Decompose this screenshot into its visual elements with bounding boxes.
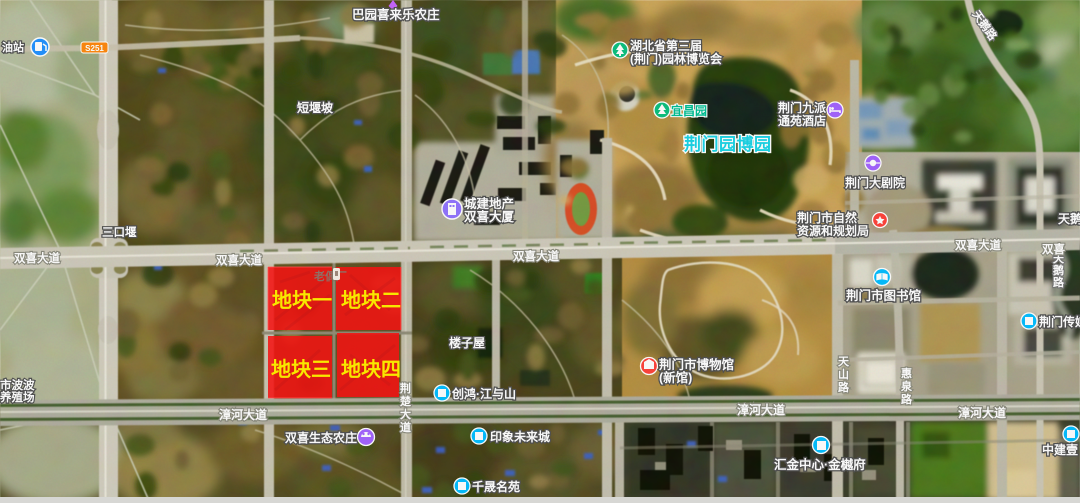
svg-text:油站: 油站 <box>2 40 24 54</box>
svg-text:双喜大道: 双喜大道 <box>215 253 262 267</box>
svg-text:资源和规划局: 资源和规划局 <box>797 223 869 238</box>
svg-text:通苑酒店: 通苑酒店 <box>778 113 826 128</box>
svg-text:漳河大道: 漳河大道 <box>219 407 267 422</box>
svg-text:地块二: 地块二 <box>341 289 401 312</box>
svg-text:(荆门)园林博览会: (荆门)园林博览会 <box>630 51 723 66</box>
svg-text:漳河大道: 漳河大道 <box>737 402 785 417</box>
svg-text:双喜大道: 双喜大道 <box>512 249 559 263</box>
svg-text:双喜生态农庄: 双喜生态农庄 <box>285 430 357 445</box>
svg-text:漳河大道: 漳河大道 <box>958 405 1006 420</box>
svg-text:千晟名苑: 千晟名苑 <box>472 479 520 494</box>
svg-text:荆门市博物馆: 荆门市博物馆 <box>659 357 734 372</box>
svg-text:惠泉路: 惠泉路 <box>900 366 913 406</box>
svg-text:汇金中心·金樾府: 汇金中心·金樾府 <box>774 457 866 472</box>
svg-text:天鹅: 天鹅 <box>1058 211 1080 226</box>
svg-text:城建地产: 城建地产 <box>464 196 514 211</box>
svg-text:荆门九派: 荆门九派 <box>778 100 827 115</box>
svg-text:短堰坡: 短堰坡 <box>297 100 334 115</box>
svg-text:地块四: 地块四 <box>341 358 401 381</box>
svg-text:天鹅路: 天鹅路 <box>1053 252 1065 289</box>
svg-text:双喜大厦: 双喜大厦 <box>463 209 515 224</box>
svg-text:地块一: 地块一 <box>272 289 332 312</box>
svg-text:楼子屋: 楼子屋 <box>449 335 485 350</box>
svg-text:荆门市图书馆: 荆门市图书馆 <box>846 288 921 303</box>
svg-text:S251: S251 <box>85 44 104 53</box>
svg-text:宜昌园: 宜昌园 <box>671 103 707 118</box>
svg-text:巴园喜来乐农庄: 巴园喜来乐农庄 <box>352 7 440 22</box>
svg-text:养殖场: 养殖场 <box>0 390 35 404</box>
svg-text:(新馆): (新馆) <box>659 370 692 385</box>
svg-text:市波波: 市波波 <box>0 378 35 392</box>
svg-text:荆门大剧院: 荆门大剧院 <box>845 175 905 190</box>
svg-text:天山路: 天山路 <box>838 355 850 394</box>
svg-text:老偶厂: 老偶厂 <box>313 269 347 283</box>
svg-text:双喜大道: 双喜大道 <box>954 238 1001 252</box>
svg-text:湖北省第三届: 湖北省第三届 <box>630 38 702 53</box>
svg-text:中建壹: 中建壹 <box>1042 442 1078 457</box>
svg-text:荆门园博园: 荆门园博园 <box>684 134 772 154</box>
svg-text:荆门传媒: 荆门传媒 <box>1039 314 1080 329</box>
svg-text:创鸿·江与山: 创鸿·江与山 <box>451 386 516 401</box>
svg-text:双喜大道: 双喜大道 <box>13 251 60 265</box>
svg-text:双喜: 双喜 <box>1041 242 1065 256</box>
svg-text:地块三: 地块三 <box>271 358 331 381</box>
svg-text:印象未来城: 印象未来城 <box>490 429 550 444</box>
svg-text:三口堰: 三口堰 <box>102 225 137 239</box>
svg-text:荆门市自然: 荆门市自然 <box>797 210 857 225</box>
svg-text:荆楚大道: 荆楚大道 <box>400 381 412 434</box>
